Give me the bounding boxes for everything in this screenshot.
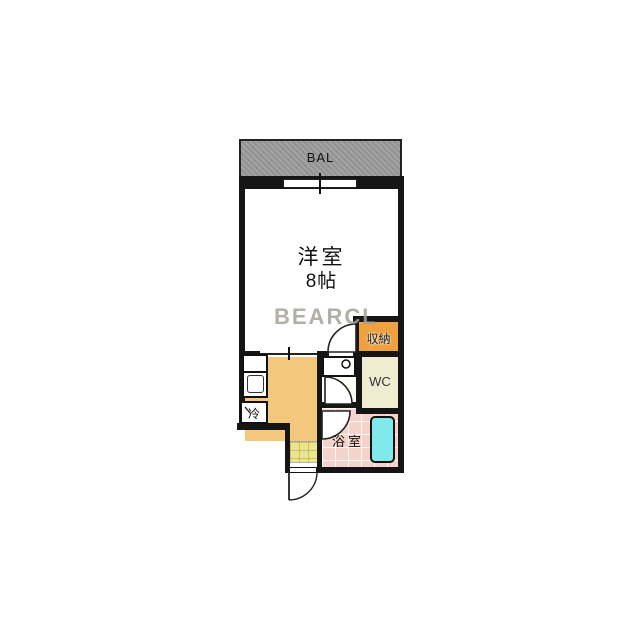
wall-entrance-left [285, 423, 290, 473]
kitchen-sliding-partition-tick [288, 347, 290, 360]
washing-machine-pan [322, 356, 356, 377]
front-door-opening [290, 468, 316, 472]
front-door-arc [289, 472, 317, 500]
closet-label: 収納 [359, 330, 398, 347]
balcony-window-tick [319, 173, 321, 194]
wall-right [398, 176, 404, 473]
balcony-label: BAL [239, 150, 402, 165]
wall-toilet-bottom [356, 408, 404, 414]
entrance-floor [290, 442, 317, 462]
refrigerator-label: 冷 [240, 405, 268, 422]
wall-kitchen-bottom [237, 423, 290, 430]
main-room-size-label: 8帖 [245, 266, 398, 293]
watermark-text: BEARCL [274, 304, 378, 330]
bathtub [370, 416, 395, 463]
toilet-label: WC [362, 374, 398, 389]
kitchen-counter-divider [242, 371, 268, 373]
kitchen-sink [247, 375, 264, 393]
bathroom-label: 浴室 [325, 431, 371, 450]
